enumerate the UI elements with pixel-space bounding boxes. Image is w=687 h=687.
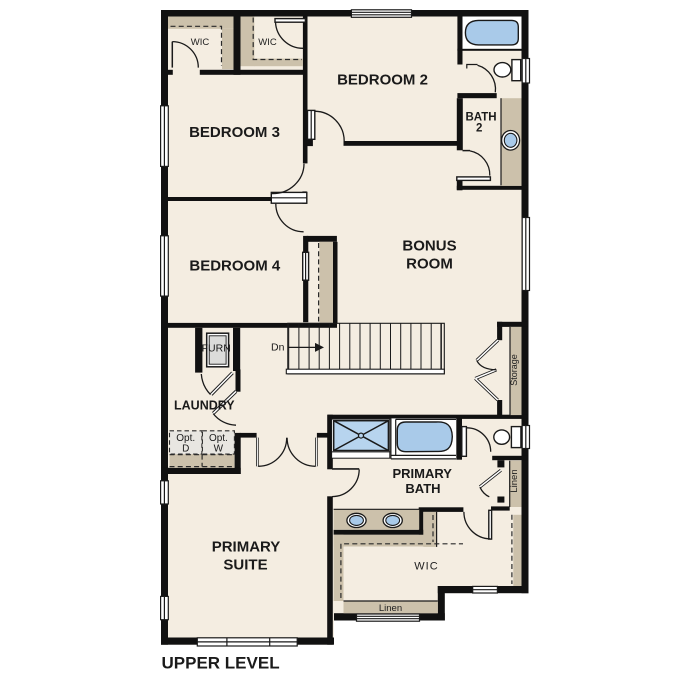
svg-text:BEDROOM 4: BEDROOM 4: [189, 257, 281, 274]
svg-text:W: W: [214, 444, 224, 455]
svg-text:D: D: [182, 444, 189, 455]
svg-text:FURN: FURN: [202, 343, 231, 355]
svg-text:Storage: Storage: [509, 354, 519, 386]
svg-text:PRIMARY: PRIMARY: [212, 539, 281, 556]
svg-text:SUITE: SUITE: [223, 557, 267, 574]
svg-text:BATH: BATH: [405, 481, 440, 496]
svg-text:WIC: WIC: [191, 37, 210, 48]
svg-text:Linen: Linen: [379, 603, 402, 614]
svg-text:Opt.: Opt.: [209, 433, 228, 444]
svg-text:Dn: Dn: [271, 342, 285, 354]
svg-text:ROOM: ROOM: [406, 256, 453, 273]
svg-text:WIC: WIC: [258, 37, 277, 48]
svg-text:UPPER LEVEL: UPPER LEVEL: [162, 654, 280, 673]
svg-text:BONUS: BONUS: [402, 238, 456, 255]
svg-text:Linen: Linen: [509, 469, 520, 492]
svg-text:2: 2: [476, 123, 482, 135]
svg-text:WIC: WIC: [414, 561, 438, 573]
svg-text:LAUNDRY: LAUNDRY: [174, 399, 235, 413]
svg-text:PRIMARY: PRIMARY: [392, 466, 452, 481]
svg-text:BEDROOM 2: BEDROOM 2: [337, 72, 428, 89]
svg-text:Opt.: Opt.: [176, 433, 195, 444]
svg-text:BEDROOM 3: BEDROOM 3: [189, 124, 280, 141]
